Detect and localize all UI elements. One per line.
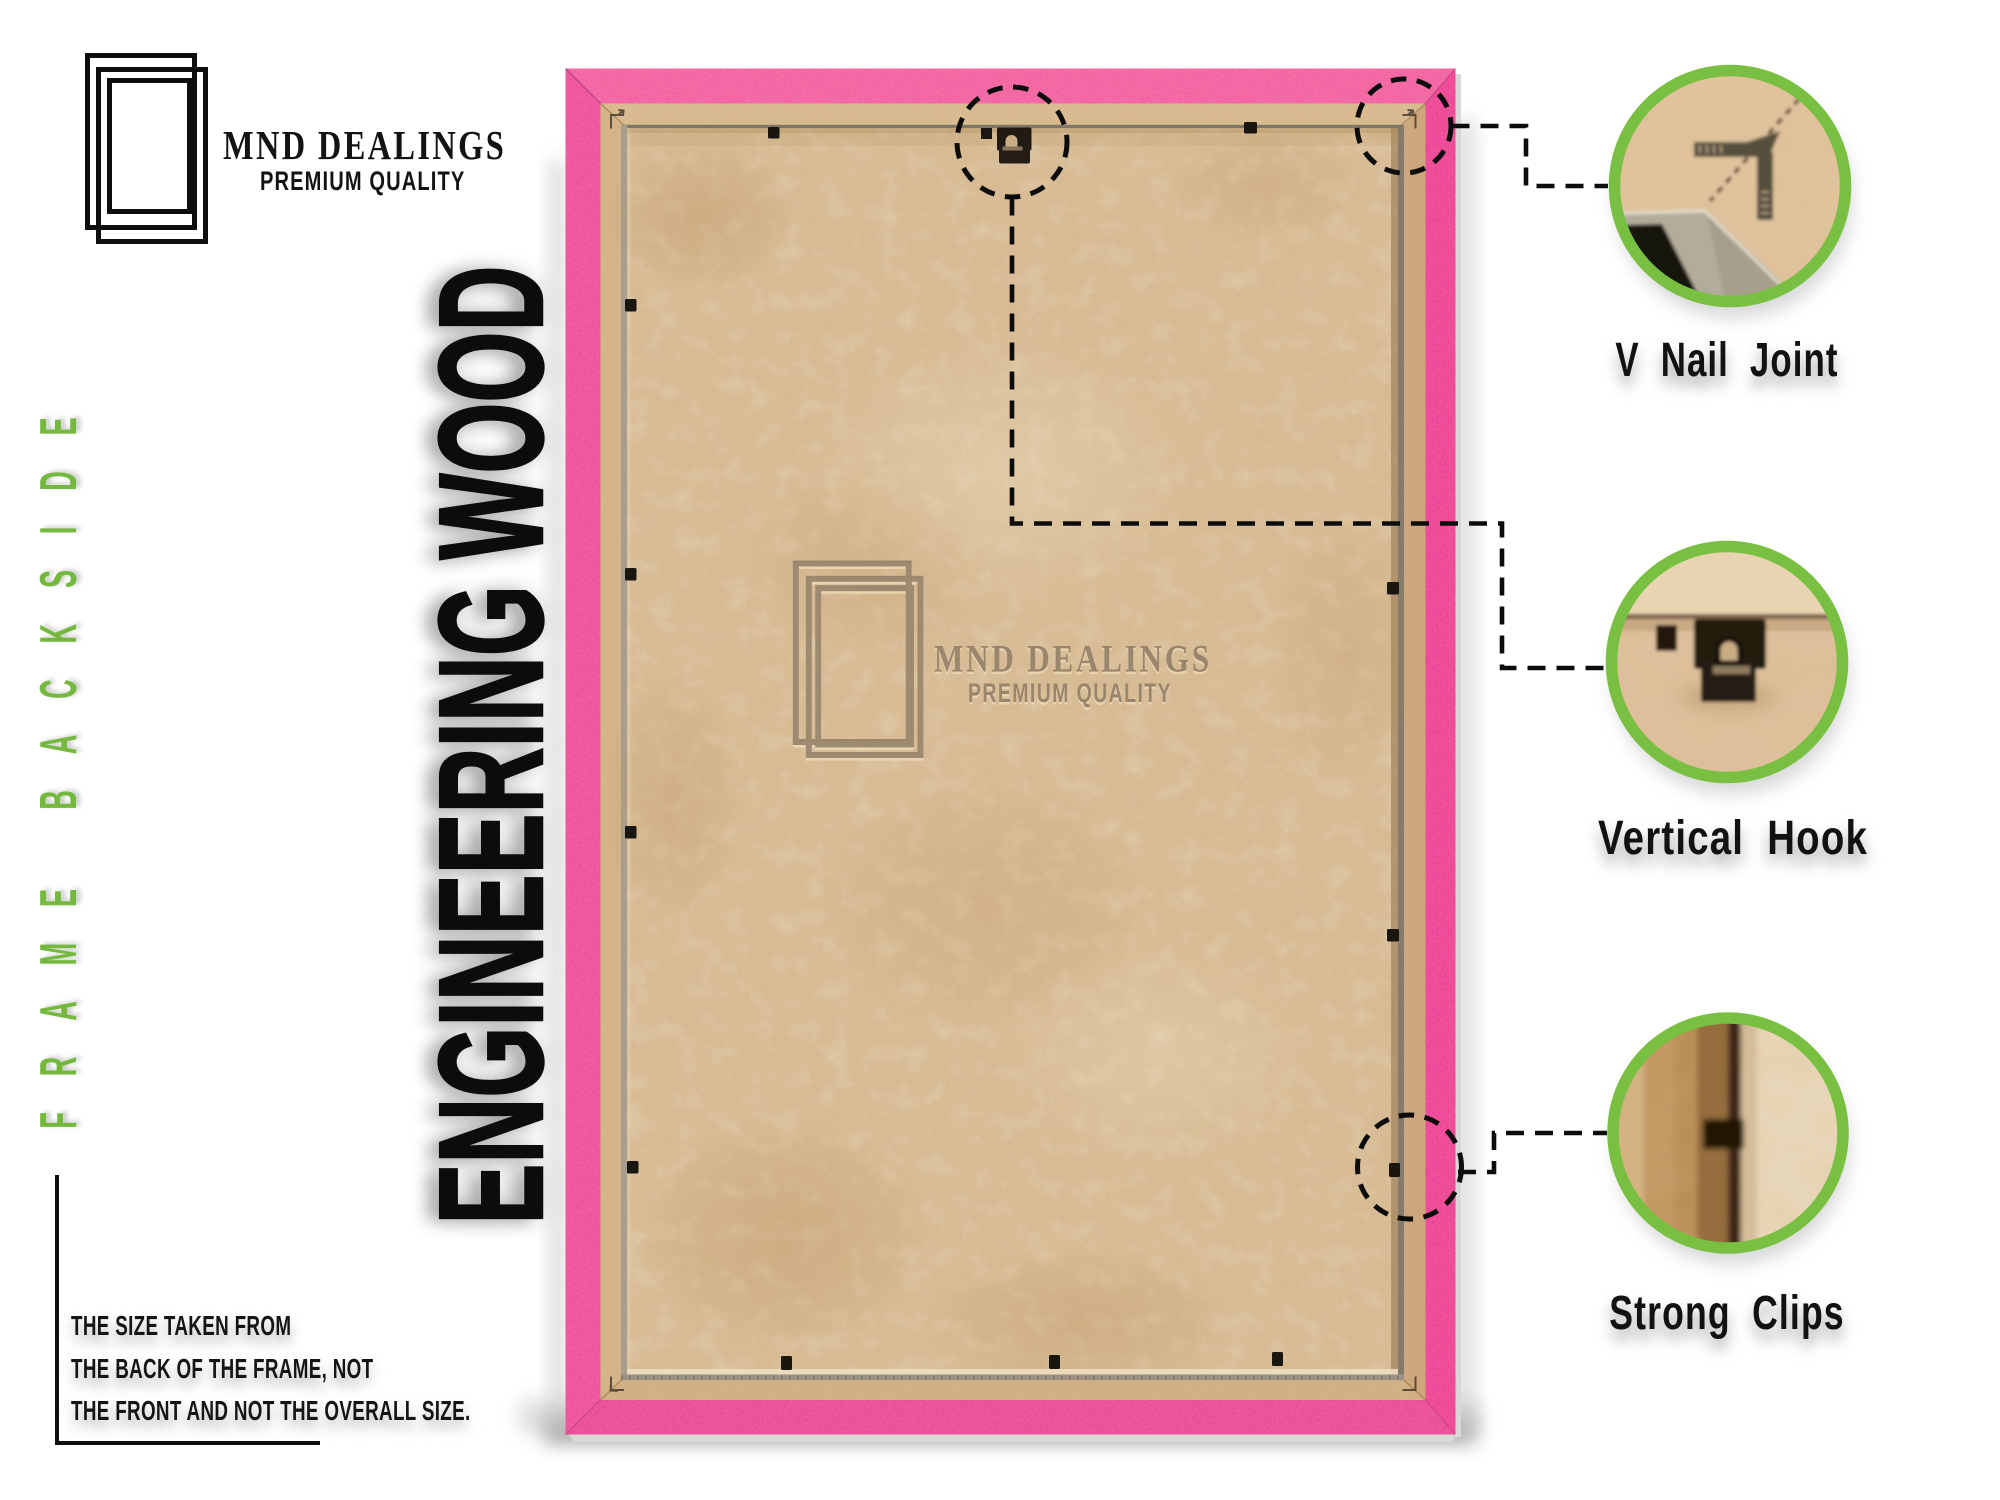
svg-text:MND DEALINGS: MND DEALINGS (934, 638, 1212, 681)
svg-text:PREMIUM QUALITY: PREMIUM QUALITY (968, 678, 1172, 708)
